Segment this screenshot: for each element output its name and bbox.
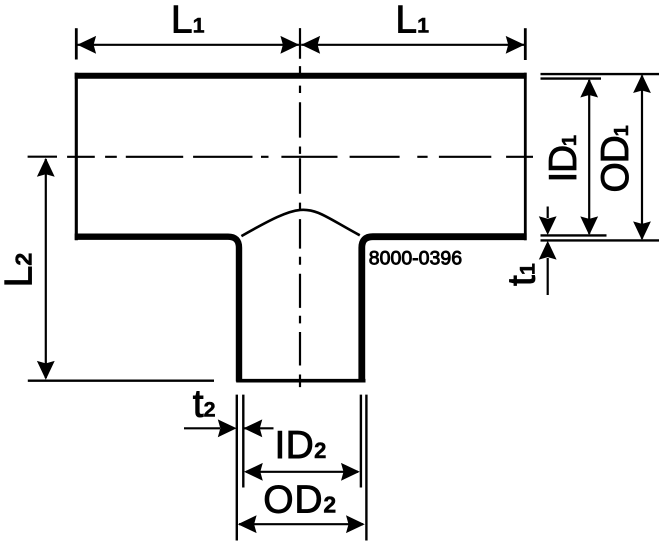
svg-text:t1: t1 xyxy=(500,263,543,286)
svg-text:L1: L1 xyxy=(171,0,205,41)
svg-text:8000-0396: 8000-0396 xyxy=(369,247,462,269)
svg-text:ID2: ID2 xyxy=(275,424,327,467)
svg-text:OD1: OD1 xyxy=(594,125,637,192)
svg-text:L1: L1 xyxy=(395,0,429,41)
svg-text:ID1: ID1 xyxy=(542,135,585,182)
svg-text:t2: t2 xyxy=(193,383,216,426)
svg-text:OD2: OD2 xyxy=(263,479,337,522)
svg-text:L2: L2 xyxy=(0,253,41,288)
